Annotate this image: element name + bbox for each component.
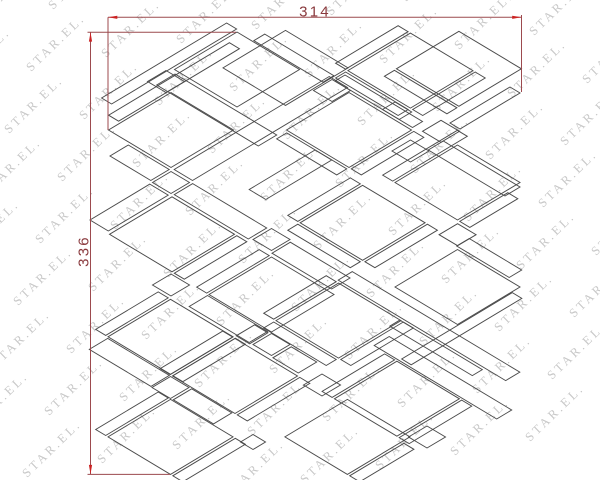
svg-text:336: 336 — [76, 235, 93, 267]
svg-text:314: 314 — [299, 3, 331, 20]
